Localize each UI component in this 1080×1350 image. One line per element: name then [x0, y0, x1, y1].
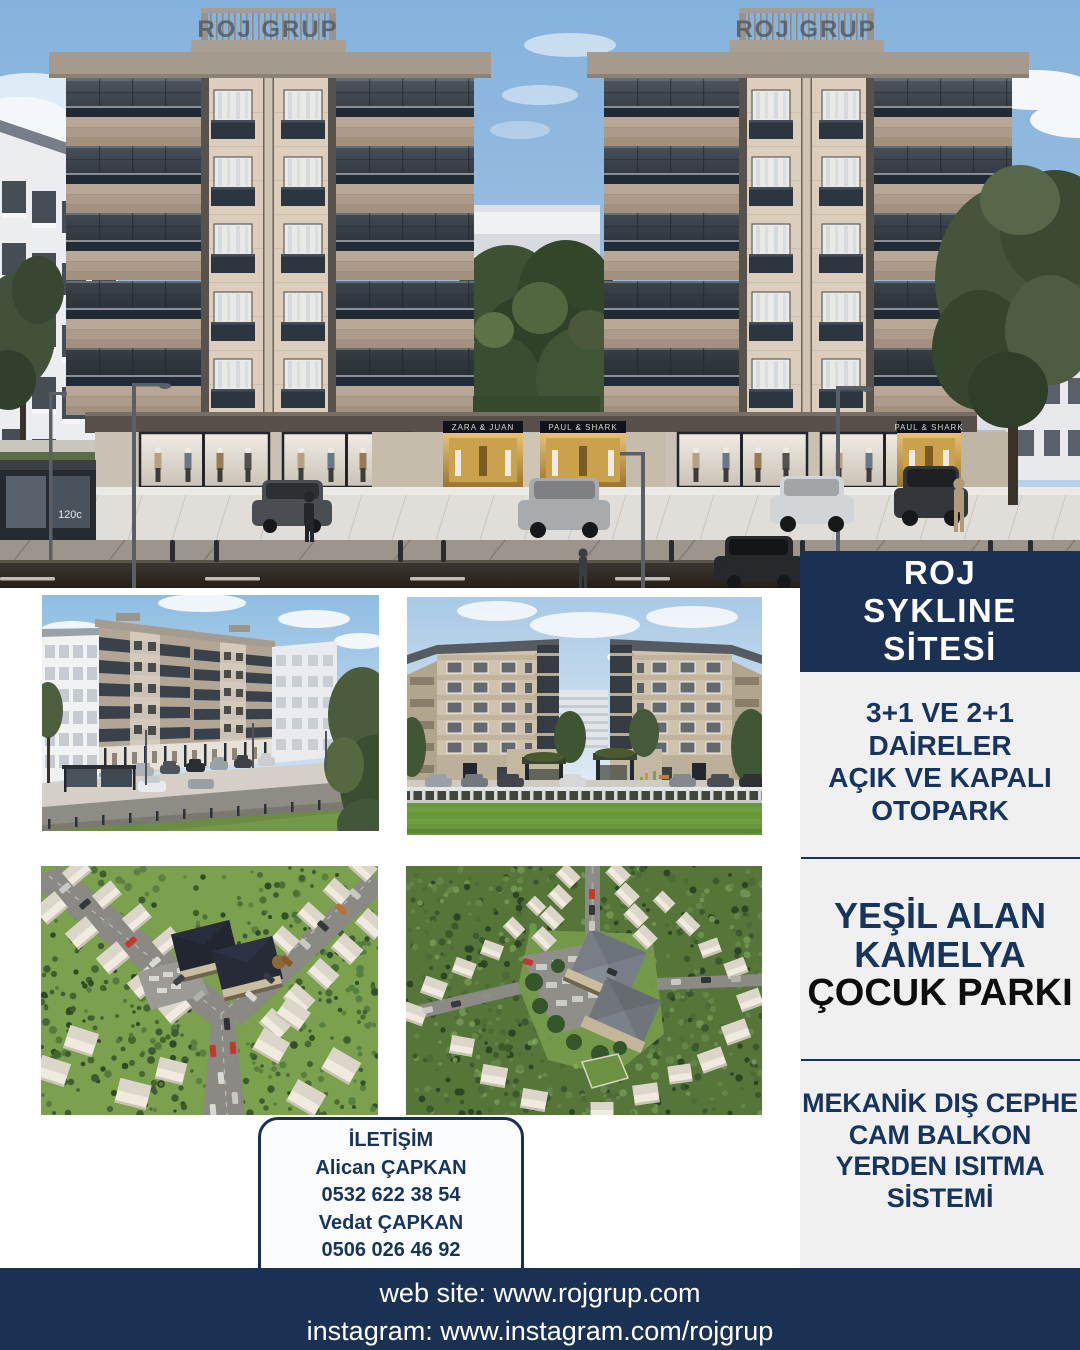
svg-text:ROJ GRUP: ROJ GRUP	[735, 16, 876, 43]
svg-text:ROJ GRUP: ROJ GRUP	[197, 16, 338, 43]
svg-text:PAUL & SHARK: PAUL & SHARK	[894, 423, 963, 432]
svg-text:120c: 120c	[58, 509, 82, 521]
svg-text:PAUL & SHARK: PAUL & SHARK	[548, 423, 617, 432]
svg-text:ZARA & JUAN: ZARA & JUAN	[452, 423, 515, 432]
